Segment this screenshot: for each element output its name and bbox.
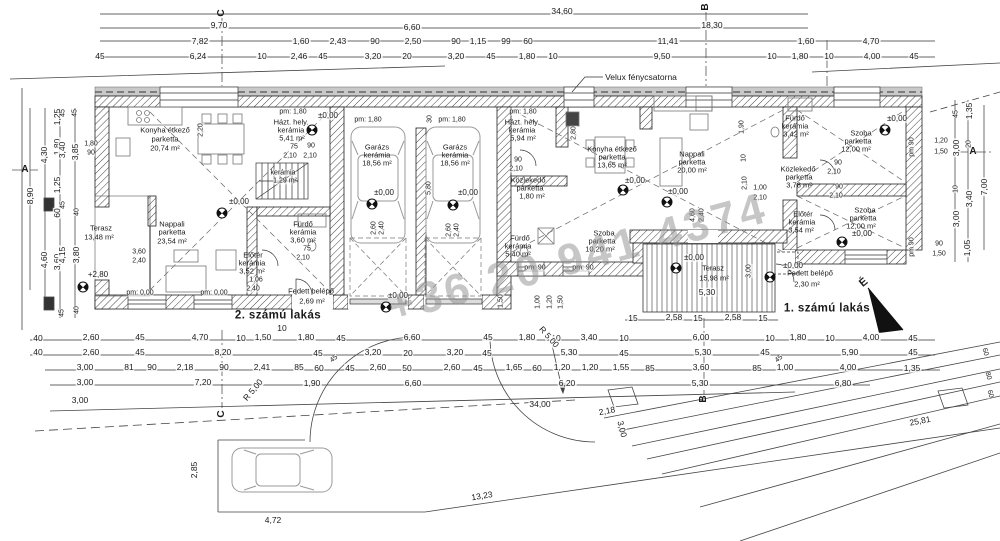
floor-plan-page: 34,609,706,6018,307,821,602,43902,50901,… (0, 0, 1000, 541)
terrace-right-deck (643, 244, 775, 312)
velux-annotation: Velux fénycsatorna (605, 73, 677, 82)
apartment-1-title: 1. számú lakás (784, 303, 870, 315)
car-driveway (232, 448, 332, 492)
car-garage-1 (351, 127, 405, 243)
parking-boxes (350, 238, 481, 296)
car-garage-2 (426, 127, 480, 243)
stairs (256, 163, 308, 199)
floor-plan-linework (0, 0, 1000, 541)
north-arrow-icon (868, 288, 903, 333)
walls (95, 87, 922, 309)
